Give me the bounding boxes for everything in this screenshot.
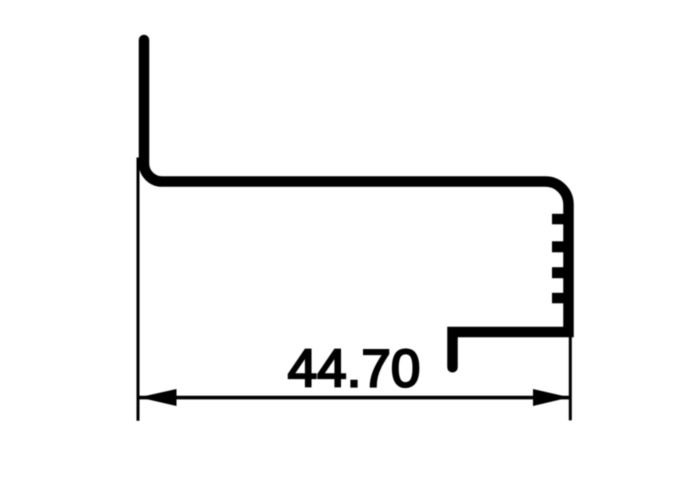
svg-text:44.70: 44.70 [288,340,421,399]
